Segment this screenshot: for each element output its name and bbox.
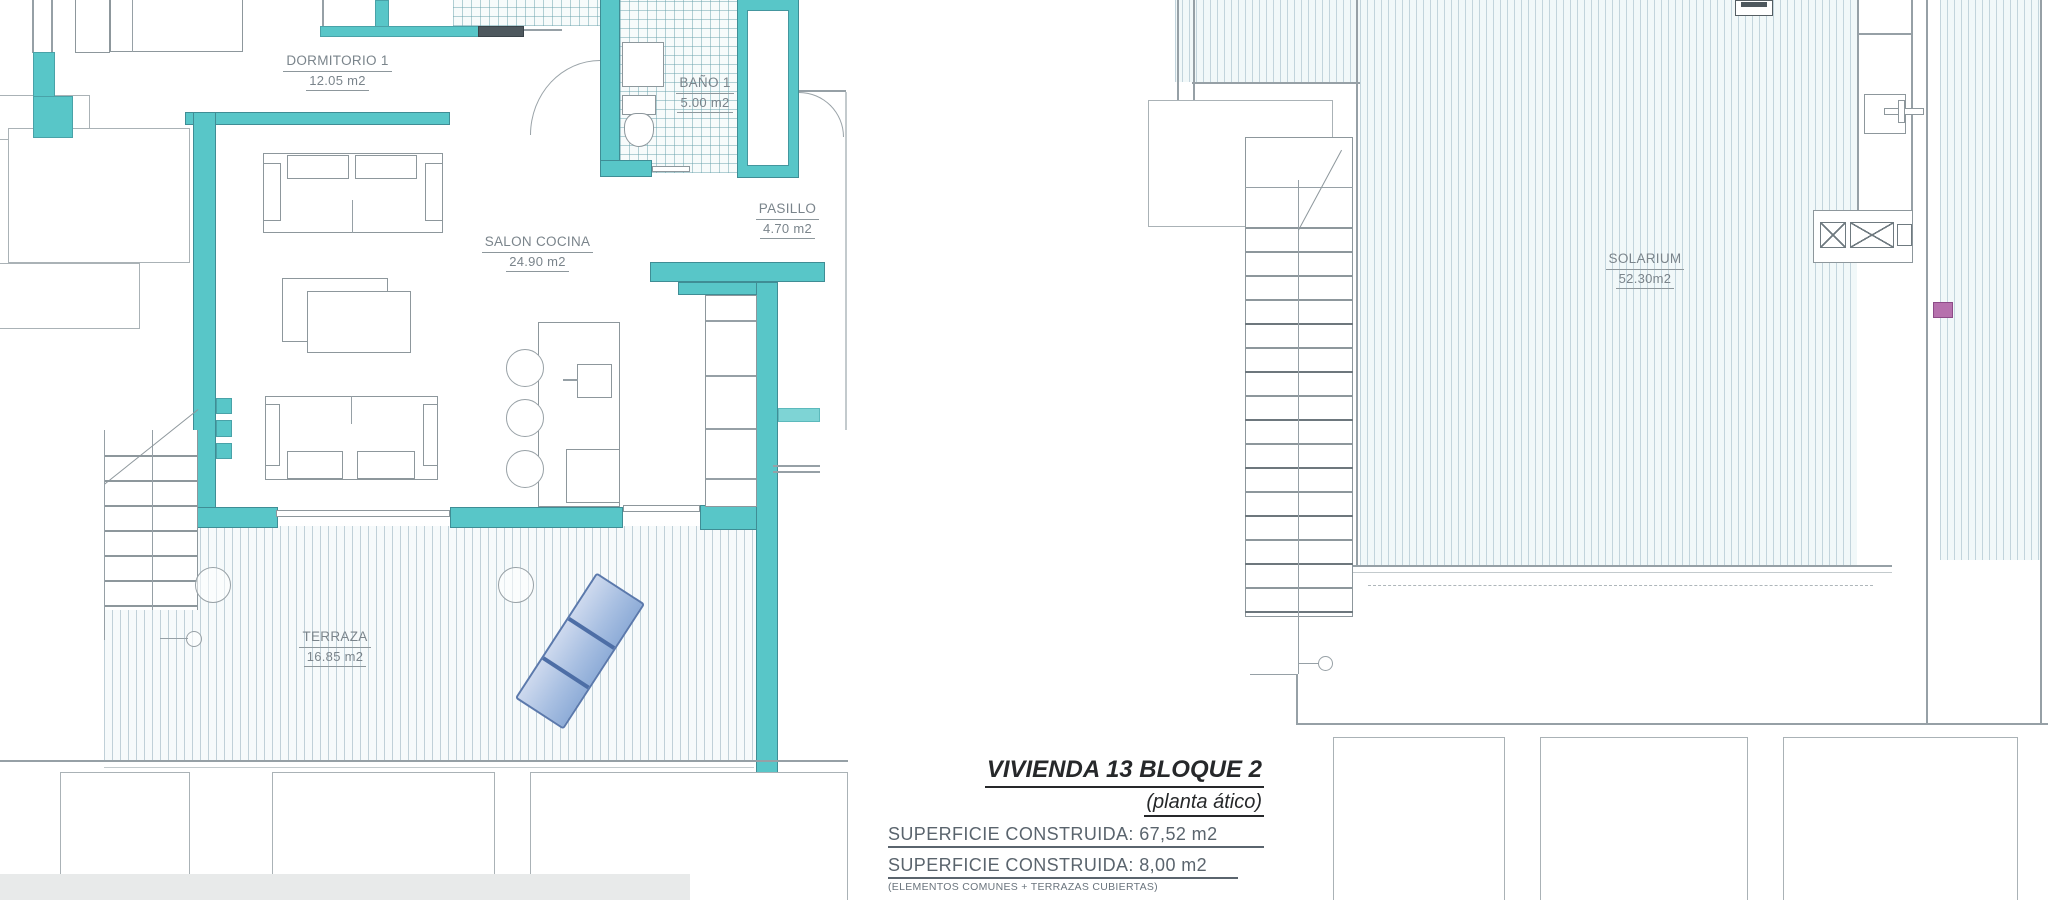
wall-dorm-south-dark-segment [478, 26, 524, 37]
sr-tread-11 [1245, 467, 1353, 469]
sr-tread-6 [1245, 347, 1353, 349]
sofa-top-armrest-right [425, 163, 443, 221]
stool-3 [506, 450, 544, 488]
sofa-bottom-back-line [351, 396, 352, 424]
window-divider-2 [706, 375, 756, 377]
east-double-line-a [773, 465, 820, 467]
ac-unit-wide-x [1850, 222, 1894, 248]
sr-tread-16 [1245, 587, 1353, 589]
neighbor-outline-large [8, 128, 190, 263]
wall-salon-north [185, 112, 450, 125]
label-dormitorio-name: DORMITORIO 1 [283, 52, 391, 72]
sofa-top-center-line [352, 200, 353, 233]
sr-tread-7 [1245, 371, 1353, 373]
landing-line-a [1177, 0, 1179, 100]
sr-tread-3 [1245, 275, 1353, 277]
sr-tread-10 [1245, 443, 1353, 445]
wall-bath-west [600, 0, 620, 175]
label-solarium: SOLARIUM 52.30m2 [1575, 250, 1715, 289]
bath-threshold [652, 166, 690, 172]
wall-salon-south-east [700, 505, 758, 530]
sofa-bottom-cushion-right [357, 451, 415, 479]
salon-sliding-door [276, 510, 450, 517]
stairs-right-landing-line [1250, 674, 1298, 675]
label-terraza: TERRAZA 16.85 m2 [270, 628, 400, 667]
label-bano: BAÑO 1 5.00 m2 [645, 74, 765, 113]
corridor-divider [1857, 33, 1912, 35]
sr-tread-14 [1245, 539, 1353, 541]
label-solarium-area: 52.30m2 [1616, 271, 1675, 290]
bed-pillow-divider [132, 0, 133, 52]
label-pasillo-area: 4.70 m2 [760, 221, 815, 240]
label-bano-area: 5.00 m2 [677, 95, 732, 114]
neighbor-wall-line-a [32, 0, 34, 53]
salon-door-east [623, 505, 700, 512]
stairs-left-tread-3 [104, 505, 198, 507]
surface-built-line-1: SUPERFICIE CONSTRUIDA: 67,52 m2 [888, 824, 1264, 848]
right-lower-connector [1296, 674, 1298, 723]
label-salon-name: SALON COCINA [482, 233, 594, 253]
tv-unit-box-3 [216, 443, 232, 459]
magenta-marker [1933, 302, 1953, 318]
wall-bath-south [600, 160, 652, 177]
kitchen-sink [577, 364, 612, 398]
solarium-topleft-boundary [1192, 82, 1360, 84]
tv-unit-box-1 [216, 398, 232, 414]
label-dormitorio-area: 12.05 m2 [306, 73, 369, 92]
sr-tread-2 [1245, 251, 1353, 253]
label-pasillo: PASILLO 4.70 m2 [735, 200, 840, 239]
title-block: VIVIENDA 13 BLOQUE 2 (planta ático) SUPE… [888, 756, 1264, 900]
plan-title-text: VIVIENDA 13 BLOQUE 2 [985, 756, 1264, 788]
terraza-floor-hatch [104, 526, 756, 762]
surface-note: (ELEMENTOS COMUNES + TERRAZAS CUBIERTAS) [888, 881, 1264, 893]
label-salon-area: 24.90 m2 [506, 254, 569, 273]
sun-lounger-bar-2 [568, 617, 615, 650]
surface-built-line-2: SUPERFICIE CONSTRUIDA: 8,00 m2 [888, 855, 1238, 879]
wardrobe [75, 0, 110, 53]
pasillo-top-line [799, 90, 846, 92]
label-pasillo-name: PASILLO [756, 200, 819, 220]
sr-tread-13 [1245, 515, 1353, 517]
sofa-top-armrest-left [263, 163, 281, 221]
kitchen-faucet [563, 379, 578, 381]
wall-thin-line-east [524, 29, 562, 31]
stairs-right-newel [1318, 656, 1333, 671]
stool-1 [506, 349, 544, 387]
wall-dorm-pillar-upper [33, 52, 55, 98]
stairs-right-stringer [1298, 180, 1299, 617]
right-plan-edge-outer [2040, 0, 2042, 723]
stairs-left-tread-4 [104, 530, 198, 532]
sofa-bottom-armrest-right [423, 404, 438, 466]
sofa-top-cushion-right [355, 155, 417, 179]
right-plan-edge-inner [1926, 0, 1928, 723]
plan-subtitle-text: (planta ático) [1144, 791, 1264, 817]
right-lower-room-1 [1333, 737, 1505, 900]
solarium-hatch-right-strip [1940, 0, 2042, 560]
sr-tread-9 [1245, 419, 1353, 421]
pasillo-door-arc [799, 92, 844, 137]
stairs-left-tread-2 [104, 480, 198, 482]
sr-tread-12 [1245, 491, 1353, 493]
stairs-right-newel-line [1299, 663, 1319, 664]
stool-2 [506, 399, 544, 437]
plan-title: VIVIENDA 13 BLOQUE 2 [888, 756, 1264, 788]
label-terraza-name: TERRAZA [299, 628, 370, 648]
stairs-left-bg [104, 430, 198, 610]
stairs-right-bg [1245, 137, 1353, 617]
terrace-plant-mid [498, 567, 534, 603]
solarium-bottom-line-b [1353, 572, 1892, 573]
stairs-left-tread-7 [104, 605, 198, 607]
plan-subtitle: (planta ático) [888, 791, 1264, 817]
label-dormitorio: DORMITORIO 1 12.05 m2 [255, 52, 420, 91]
coffee-table-front [307, 291, 411, 353]
bed [110, 0, 243, 52]
stairs-left-tread-1 [104, 455, 198, 457]
label-salon: SALON COCINA 24.90 m2 [465, 233, 610, 272]
lower-floor-line-a [0, 760, 848, 762]
landing-line-b [1193, 0, 1195, 100]
stairs-right-bottom-line [1298, 617, 1299, 674]
solarium-dashed-line [1368, 585, 1873, 586]
sr-tread-15 [1245, 563, 1353, 565]
wall-salon-south-mid [450, 507, 623, 528]
sr-tread-17 [1245, 611, 1353, 613]
wall-salon-east-bar [650, 262, 825, 282]
wall-dorm-door-jamb [375, 0, 389, 28]
wall-east-vertical [756, 282, 778, 847]
window-divider-3 [706, 428, 756, 430]
building-edge-line [845, 92, 847, 430]
stairs-left-tread-5 [104, 555, 198, 557]
vent-box-vbar [1898, 100, 1905, 123]
bathroom-floor-tiles-upper [453, 0, 600, 26]
corridor-left-line [1857, 0, 1859, 210]
sun-lounger-bar-1 [542, 656, 589, 689]
sofa-top-cushion-left [287, 155, 349, 179]
sr-tread-8 [1245, 395, 1353, 397]
right-lower-line [1296, 723, 2048, 725]
right-lower-room-2 [1540, 737, 1748, 900]
sr-tread-5 [1245, 323, 1353, 325]
floorplan-sheet: DORMITORIO 1 12.05 m2 BAÑO 1 5.00 m2 SAL… [0, 0, 2048, 900]
sofa-bottom-armrest-left [265, 404, 280, 466]
sheet-edge-shading [0, 874, 690, 900]
solarium-bottom-line-a [1353, 565, 1892, 567]
wall-dorm-pillar-lower [33, 96, 73, 138]
kitchen-island-lower [566, 449, 620, 503]
neighbor-wall-line-b [51, 0, 53, 53]
lower-floor-line-b [104, 767, 754, 768]
terrace-drain [186, 631, 202, 647]
window-divider-4 [706, 478, 756, 480]
ac-unit-small-x [1820, 222, 1846, 248]
wall-salon-south-west [193, 507, 278, 528]
ac-unit-plain-box [1897, 224, 1912, 246]
stairs-left-tread-6 [104, 580, 198, 582]
sr-tread-4 [1245, 299, 1353, 301]
solarium-left-boundary [1356, 0, 1358, 567]
label-terraza-area: 16.85 m2 [304, 649, 367, 668]
stairs-left-edge [104, 430, 105, 640]
wall-line-top [322, 0, 324, 27]
sofa-bottom-cushion-left [287, 451, 343, 479]
neighbor-outline-lower [0, 263, 140, 329]
window-divider-1 [706, 320, 756, 322]
corridor-right-line [1911, 0, 1913, 210]
wall-east-stub [778, 408, 820, 422]
right-lower-room-3 [1783, 737, 2018, 900]
label-solarium-name: SOLARIUM [1606, 250, 1685, 270]
tv-unit-box-2 [216, 420, 232, 437]
terrace-plant-left [195, 567, 231, 603]
stairs-right-top-line [1245, 187, 1353, 188]
bath-toilet-bowl [624, 113, 654, 147]
bath-door-arc [530, 60, 600, 135]
solarium-hatch-topleft [1175, 0, 1360, 82]
terrace-drain-line [160, 638, 188, 639]
salon-east-window-column [705, 295, 757, 507]
label-bano-name: BAÑO 1 [676, 74, 733, 94]
east-double-line-b [773, 471, 820, 473]
roof-access-box-fill [1741, 2, 1767, 7]
stairs-left-stringer [152, 430, 153, 610]
